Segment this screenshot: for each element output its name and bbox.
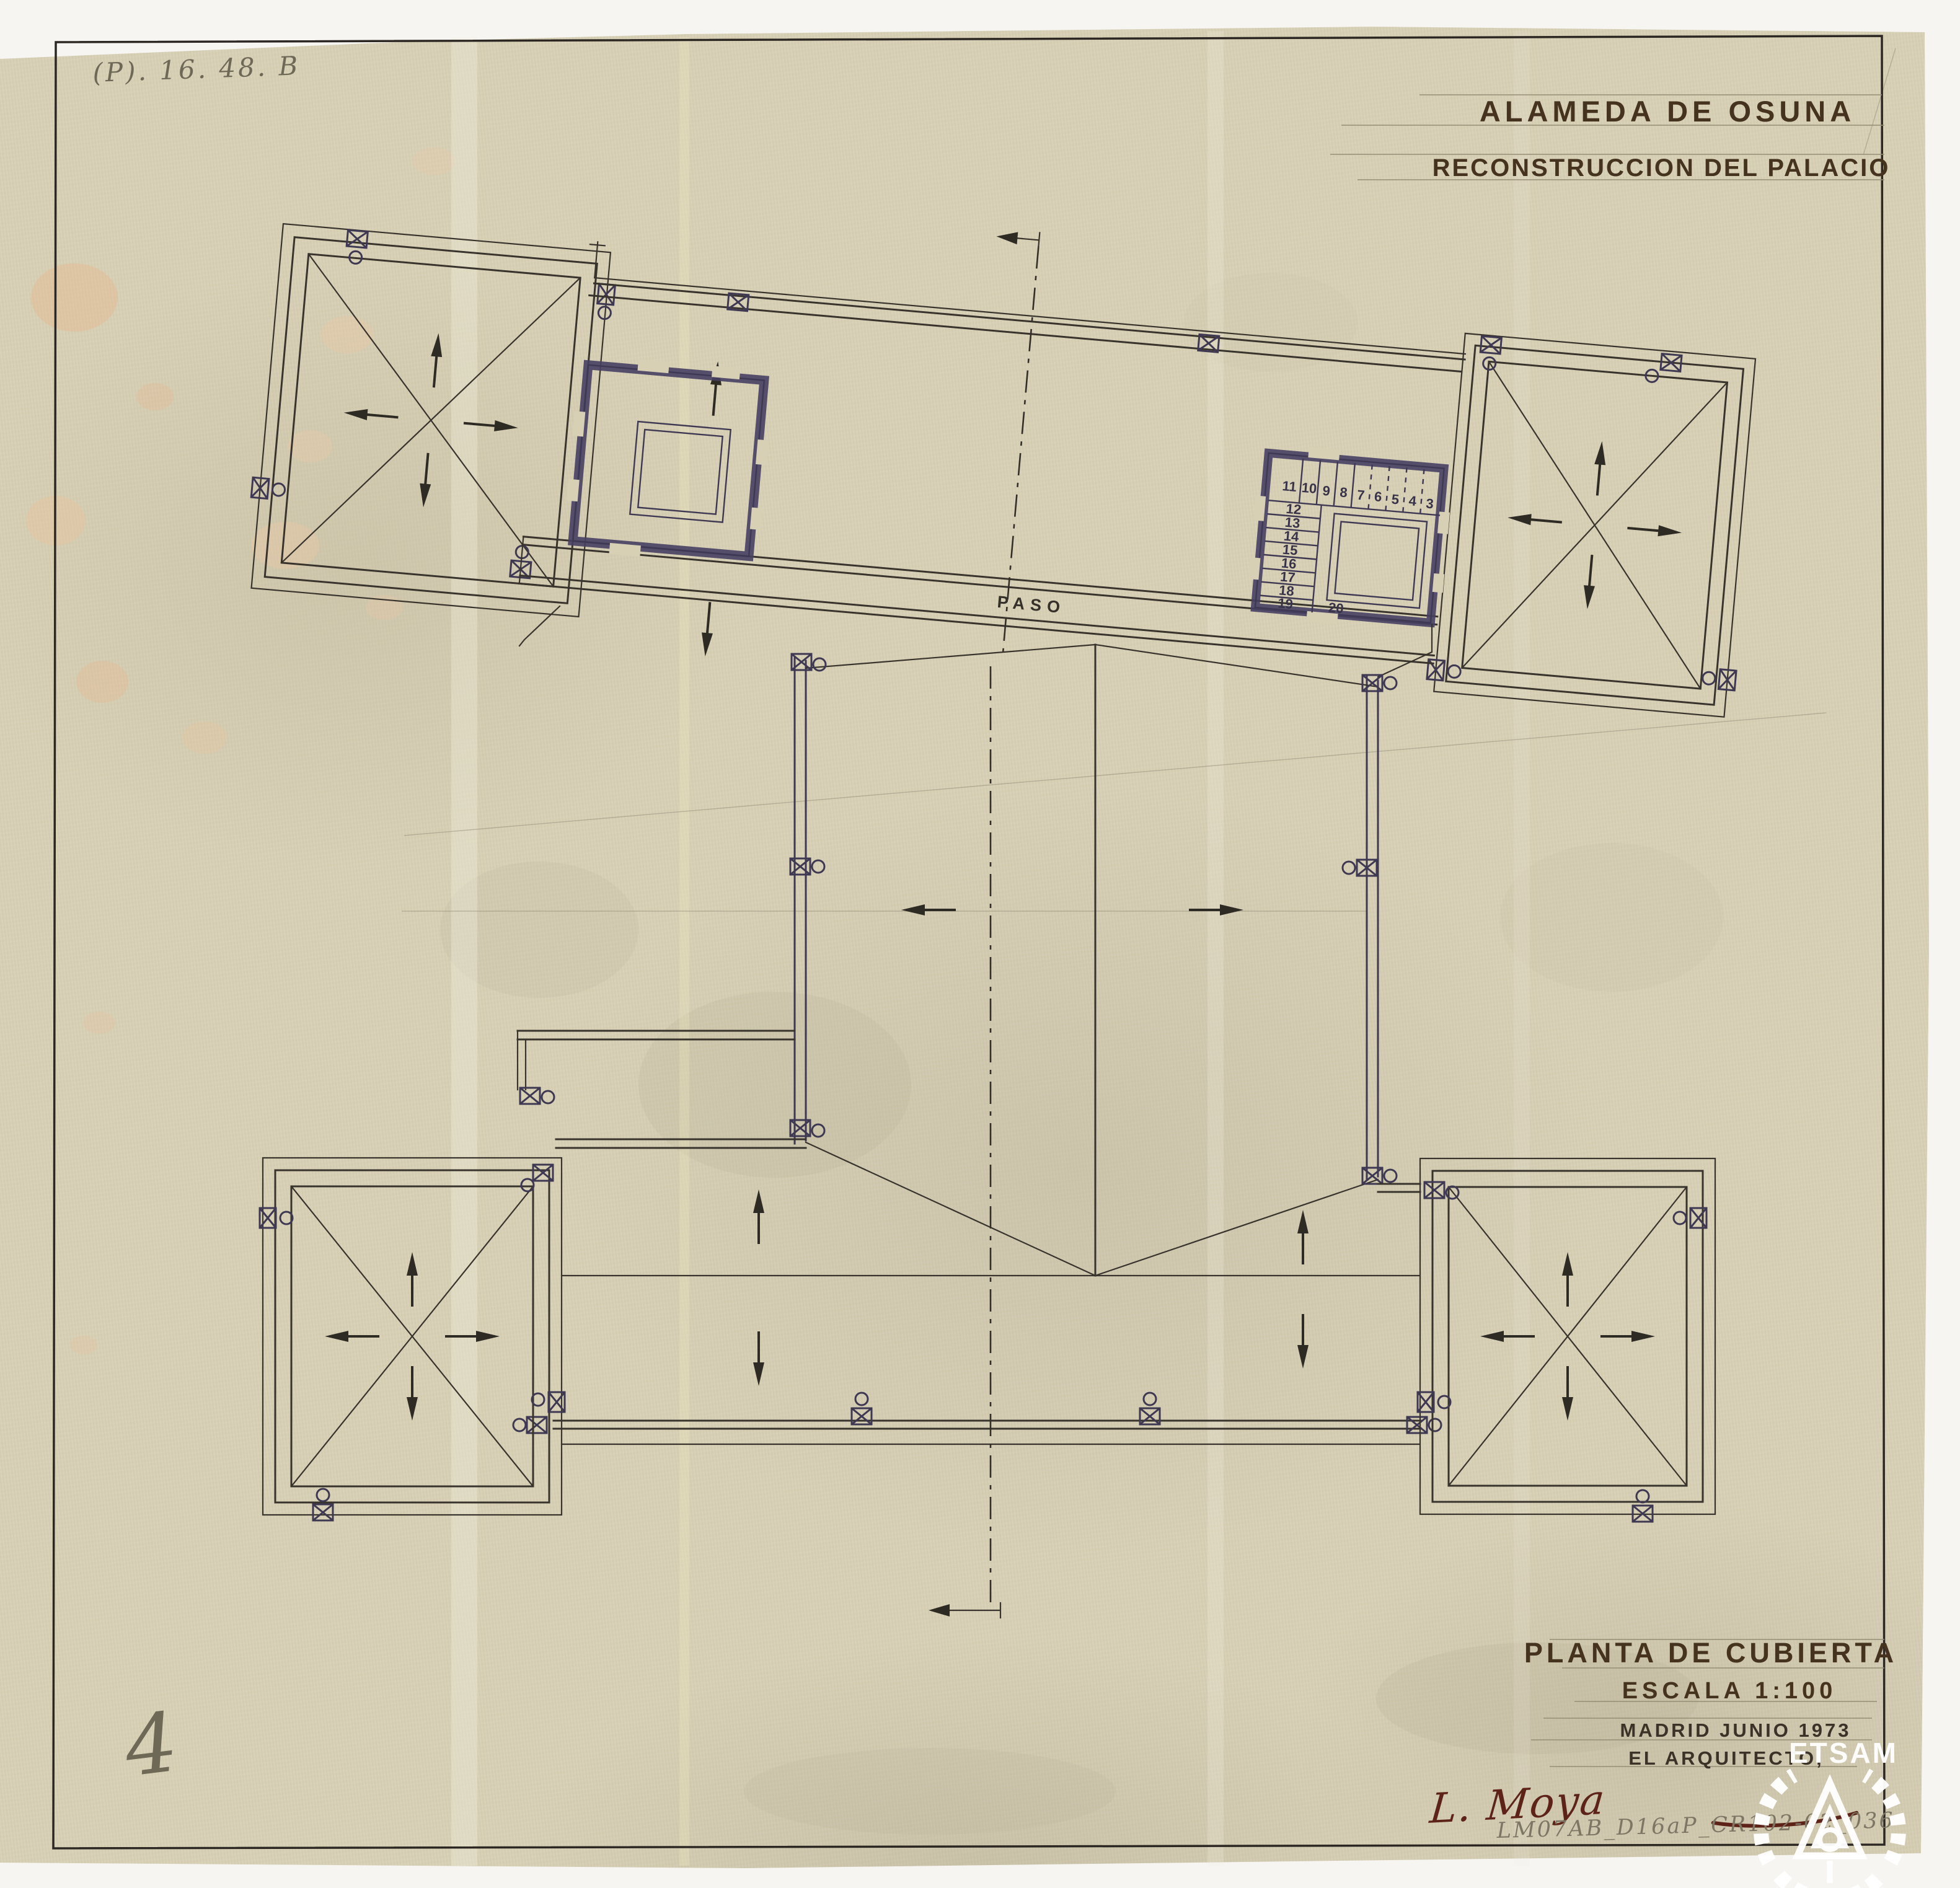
etsam-watermark-label: ETSAM (1789, 1737, 1898, 1769)
tread-number: 9 (1322, 483, 1331, 499)
pavilion-southeast (1418, 1158, 1715, 1522)
tread-number: 3 (1425, 495, 1434, 511)
tread-number: 10 (1301, 480, 1318, 496)
drawing-title: PLANTA DE CUBIERTA (1524, 1637, 1897, 1669)
paper-stains (26, 31, 1896, 1866)
corridor-label: PASO (997, 593, 1067, 617)
pavilion-northeast (1426, 333, 1764, 718)
tread-number: 5 (1391, 492, 1400, 508)
archive-reference: (P). 16. 48. B (92, 50, 301, 88)
drawing-scale: ESCALA 1:100 (1622, 1678, 1837, 1704)
project-subtitle: RECONSTRUCCION DEL PALACIO (1432, 154, 1891, 182)
stair-tower-east: 11 10 9 8 7 6 5 4 3 12 13 14 15 16 17 18 (1250, 448, 1449, 627)
scanned-drawing-sheet: PASO (0, 0, 1960, 1888)
tread-number: 7 (1356, 487, 1365, 503)
header-title-block: ALAMEDA DE OSUNA RECONSTRUCCION DEL PALA… (1432, 95, 1891, 182)
stair-tread-numbers: 11 10 9 8 7 6 5 4 3 12 13 14 15 16 17 18 (1271, 478, 1434, 624)
section-axis-south (929, 666, 1000, 1618)
tread-number: 20 (1328, 599, 1344, 616)
roof-plan-drawing: PASO (0, 0, 1960, 1888)
tread-number: 19 (1277, 595, 1294, 612)
tread-number: 4 (1408, 493, 1418, 509)
tread-number: 8 (1340, 484, 1348, 500)
paso-corridor: PASO (519, 537, 1437, 664)
pavilion-southwest (260, 1158, 565, 1520)
tread-number: 11 (1282, 478, 1297, 495)
project-title: ALAMEDA DE OSUNA (1480, 95, 1855, 128)
tread-number: 6 (1374, 488, 1382, 505)
section-axis-north (960, 229, 1040, 653)
sheet-number: 4 (119, 1695, 183, 1796)
central-block (519, 606, 1432, 1276)
